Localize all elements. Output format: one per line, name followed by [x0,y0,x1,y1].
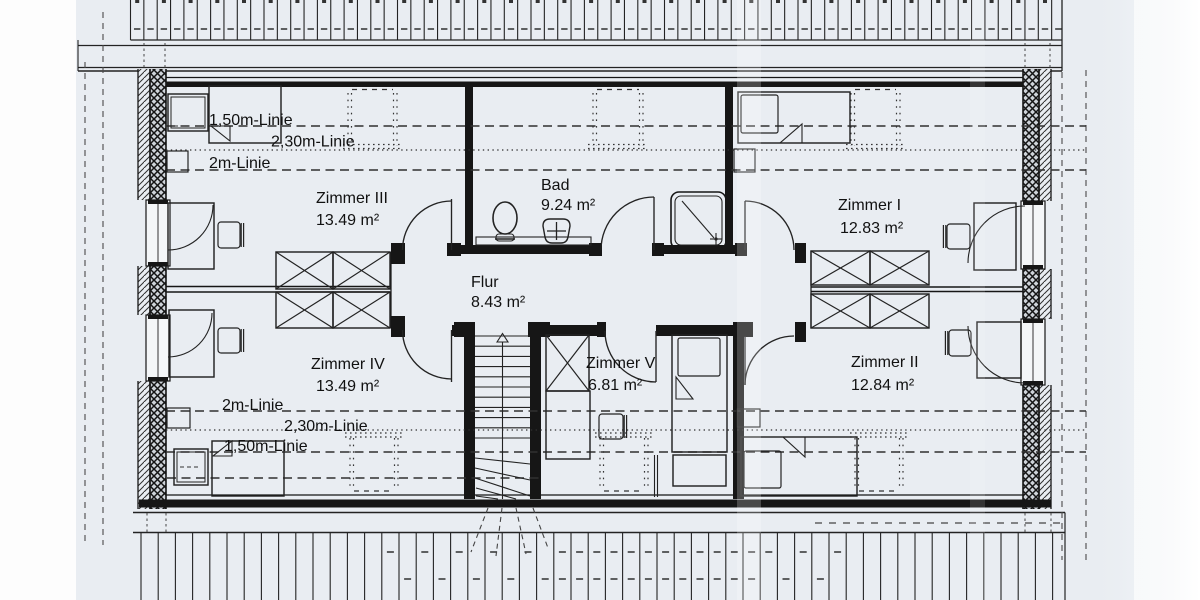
svg-text:6.81 m²: 6.81 m² [588,377,643,394]
svg-text:12.84 m²: 12.84 m² [851,377,915,394]
svg-text:2m-Linie: 2m-Linie [209,155,270,172]
svg-text:1,50m-Linie: 1,50m-Linie [224,438,308,455]
svg-text:Zimmer III: Zimmer III [316,190,388,207]
svg-text:2m-Linie: 2m-Linie [222,397,283,414]
svg-text:Flur: Flur [471,274,499,291]
svg-text:Zimmer II: Zimmer II [851,354,919,371]
svg-text:2,30m-Linie: 2,30m-Linie [284,418,368,435]
svg-text:9.24 m²: 9.24 m² [541,197,596,214]
svg-text:12.83 m²: 12.83 m² [840,220,904,237]
svg-text:Zimmer I: Zimmer I [838,197,901,214]
svg-text:13.49 m²: 13.49 m² [316,378,380,395]
svg-text:Zimmer V: Zimmer V [586,355,656,372]
svg-text:13.49 m²: 13.49 m² [316,212,380,229]
svg-text:Bad: Bad [541,177,569,194]
svg-text:1,50m-Linie: 1,50m-Linie [209,112,293,129]
svg-text:2,30m-Linie: 2,30m-Linie [271,134,355,151]
svg-text:Zimmer IV: Zimmer IV [311,356,385,373]
svg-text:8.43 m²: 8.43 m² [471,294,526,311]
